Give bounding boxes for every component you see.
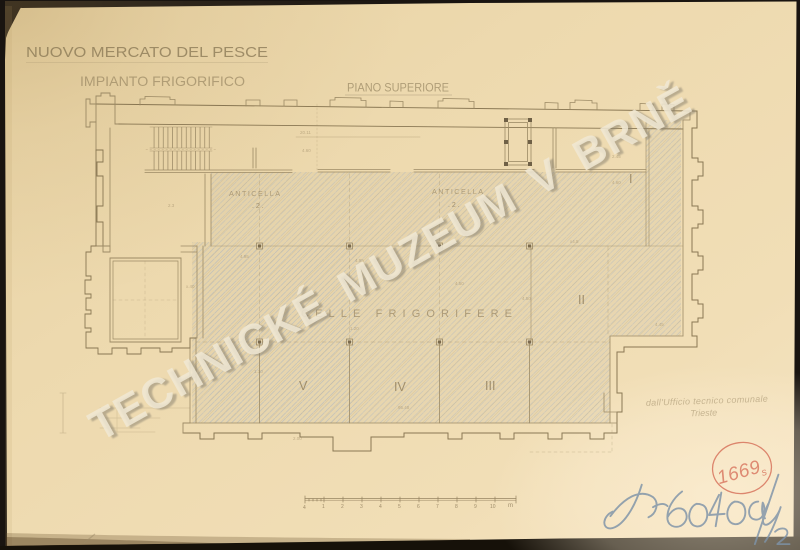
svg-text:Trieste: Trieste xyxy=(690,407,717,418)
svg-text:IV: IV xyxy=(394,380,406,394)
svg-text:4.95: 4.95 xyxy=(240,254,249,259)
svg-text:4.50: 4.50 xyxy=(522,296,531,301)
svg-text:2.00: 2.00 xyxy=(293,436,302,441)
svg-text:ANTICELLA: ANTICELLA xyxy=(229,189,280,198)
svg-text:3: 3 xyxy=(360,504,363,510)
svg-text:II: II xyxy=(578,293,585,307)
svg-text:1: 1 xyxy=(322,504,325,510)
svg-text:m: m xyxy=(508,503,513,509)
svg-text:7: 7 xyxy=(436,504,439,510)
svg-text:1.20: 1.20 xyxy=(350,326,359,331)
svg-text:4.50: 4.50 xyxy=(455,281,464,286)
svg-text:4: 4 xyxy=(379,504,382,510)
svg-text:IMPIANTO FRIGORIFICO: IMPIANTO FRIGORIFICO xyxy=(80,73,245,89)
svg-text:PIANO SUPERIORE: PIANO SUPERIORE xyxy=(347,81,449,95)
svg-text:9: 9 xyxy=(474,504,477,510)
svg-text:6: 6 xyxy=(417,504,420,510)
svg-text:4.60: 4.60 xyxy=(302,148,311,153)
svg-text:4.45: 4.45 xyxy=(655,322,664,327)
svg-text:. 2 .: . 2 . xyxy=(252,203,264,210)
svg-text:2.3: 2.3 xyxy=(168,203,175,208)
svg-text:NUOVO MERCATO DEL PESCE: NUOVO MERCATO DEL PESCE xyxy=(26,44,268,61)
svg-text:x4.5: x4.5 xyxy=(570,239,579,244)
svg-text:I: I xyxy=(629,172,632,186)
svg-text:20.11: 20.11 xyxy=(300,130,311,135)
svg-text:5: 5 xyxy=(398,504,401,510)
svg-text:8: 8 xyxy=(455,504,458,510)
svg-text:III: III xyxy=(485,379,495,393)
svg-text:95.48: 95.48 xyxy=(398,405,410,410)
svg-text:x.40: x.40 xyxy=(186,284,195,289)
svg-text:2: 2 xyxy=(341,504,344,510)
svg-text:10: 10 xyxy=(490,504,496,510)
svg-text:V: V xyxy=(299,379,308,393)
svg-text:4.60: 4.60 xyxy=(612,180,621,185)
svg-text:4: 4 xyxy=(303,505,306,511)
